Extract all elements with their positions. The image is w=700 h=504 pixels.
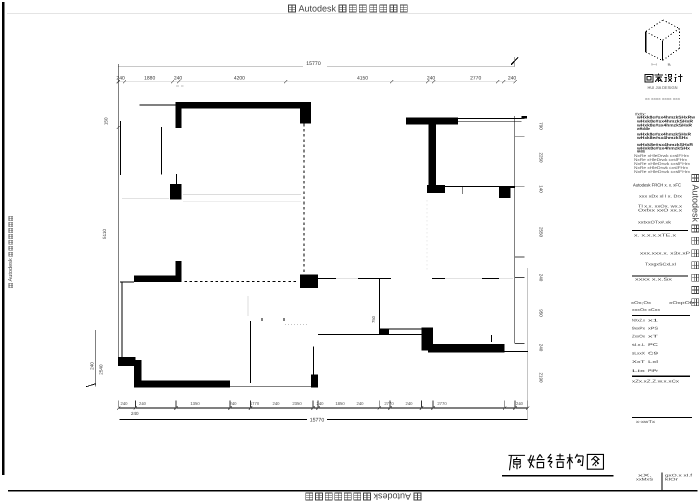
svg-text:240: 240 [508, 76, 517, 82]
svg-text:950: 950 [539, 309, 544, 317]
svg-text:2350: 2350 [292, 401, 302, 406]
svg-text:1880: 1880 [144, 76, 155, 82]
svg-text:klOr: klOr [665, 478, 679, 482]
svg-text:Autodesk FRCH x. x. xFC: Autodesk FRCH x. x. xFC [633, 182, 681, 187]
svg-text:Autodesk: Autodesk [299, 4, 337, 14]
svg-text:xxMxS: xxMxS [636, 478, 654, 482]
svg-text:240: 240 [539, 344, 544, 352]
svg-text:HUI JIA DESIGN: HUI JIA DESIGN [648, 85, 678, 90]
svg-text:wHxk8e: wHxk8e [636, 126, 651, 131]
svg-text:xT: xT [648, 334, 659, 339]
svg-text:5110: 5110 [102, 229, 107, 239]
svg-text:XxT: XxT [632, 359, 646, 364]
svg-text:xxtxxOTx#.xk: xxtxxOTx#.xk [638, 220, 671, 225]
svg-text:240: 240 [539, 274, 544, 282]
svg-text:240: 240 [516, 401, 524, 406]
svg-text:240: 240 [230, 401, 238, 406]
svg-text:15770: 15770 [310, 418, 325, 424]
svg-text:240: 240 [406, 401, 414, 406]
svg-text:2770: 2770 [437, 401, 447, 406]
svg-text:xOx;Ox: xOx;Ox [631, 300, 651, 305]
svg-text:790: 790 [539, 122, 544, 130]
svg-text:x1: x1 [648, 318, 658, 323]
svg-text:xxxx x.x.Sx: xxxx x.x.Sx [635, 276, 672, 281]
svg-text:xZx.xZ.Z.w.x.xCx: xZx.xZ.Z.w.x.xCx [632, 379, 679, 384]
svg-text:I—i: I—i [651, 63, 656, 67]
svg-text:Lxl: Lxl [648, 359, 658, 364]
svg-text:xxxOx xCxx: xxxOx xCxx [632, 307, 660, 312]
svg-text:TxxgxSCxLxI: TxxgxSCxLxI [645, 261, 676, 266]
svg-text:sI.x.L: sI.x.L [632, 342, 646, 347]
svg-text:2190: 2190 [539, 372, 544, 383]
svg-text:750: 750 [371, 315, 376, 323]
svg-text:150: 150 [104, 117, 109, 125]
svg-text:2250: 2250 [539, 152, 544, 163]
svg-text:9xxPx: 9xxPx [632, 326, 645, 331]
svg-text:Autodesk: Autodesk [690, 185, 700, 223]
svg-text:Oxfxx xxO xx.x: Oxfxx xxO xx.x [638, 208, 682, 213]
svg-text:240: 240 [317, 401, 325, 406]
svg-text:240: 240 [121, 401, 129, 406]
svg-text:Ia.: Ia. [668, 63, 672, 67]
svg-text:PiPr: PiPr [648, 368, 659, 373]
svg-text:1770: 1770 [250, 401, 260, 406]
svg-text:sLxxX: sLxxX [632, 350, 645, 355]
svg-text:wHxk8e#sx4hmzkSHx: wHxk8e#sx4hmzkSHx [636, 135, 689, 140]
svg-text:PC: PC [648, 342, 658, 347]
svg-text:240: 240 [131, 411, 139, 416]
svg-text:Autodesk: Autodesk [7, 258, 14, 281]
svg-text:xOxpOfx: xOxpOfx [669, 300, 695, 305]
svg-text:240: 240 [90, 362, 95, 370]
svg-text:2540: 2540 [98, 364, 103, 375]
svg-text:240: 240 [116, 76, 125, 82]
svg-text:2770: 2770 [470, 76, 481, 82]
svg-text:C9: C9 [648, 350, 658, 355]
svg-text:2770: 2770 [384, 401, 394, 406]
svg-text:240: 240 [273, 401, 281, 406]
svg-text:1850: 1850 [335, 401, 345, 406]
svg-text:2550: 2550 [539, 227, 544, 238]
svg-text:240: 240 [357, 401, 365, 406]
svg-text:NxRe xHleDrwk cxslFHrx: NxRe xHleDrwk cxslFHrx [634, 169, 690, 174]
svg-text:4150: 4150 [357, 76, 368, 82]
svg-text:1350: 1350 [190, 401, 200, 406]
svg-text:4200: 4200 [234, 76, 245, 82]
svg-text:240: 240 [139, 401, 147, 406]
svg-text:xxx.xxx.x. x3x.xP: xxx.xxx.x. x3x.xP [640, 251, 691, 256]
svg-text:xPS: xPS [648, 326, 659, 331]
svg-text:ZxxOx: ZxxOx [632, 334, 645, 339]
svg-text:xxx xDx xl l x. Drx: xxx xDx xl l x. Drx [639, 193, 682, 198]
svg-text:Autodesk: Autodesk [373, 492, 411, 502]
svg-text:Lix: Lix [632, 368, 645, 373]
svg-text:NXxZ.x: NXxZ.x [632, 318, 645, 323]
svg-text:x-xwTx: x-xwTx [636, 419, 655, 424]
svg-text:240: 240 [427, 76, 436, 82]
svg-text:140: 140 [539, 185, 544, 193]
svg-text:15770: 15770 [306, 61, 321, 67]
svg-text:x. x.x.x.xTE.x: x. x.x.x.xTE.x [634, 232, 676, 237]
svg-text:240: 240 [174, 76, 183, 82]
svg-text:xx xxxx xxxx xxx: xx xxxx xxxx xxx [645, 97, 680, 101]
